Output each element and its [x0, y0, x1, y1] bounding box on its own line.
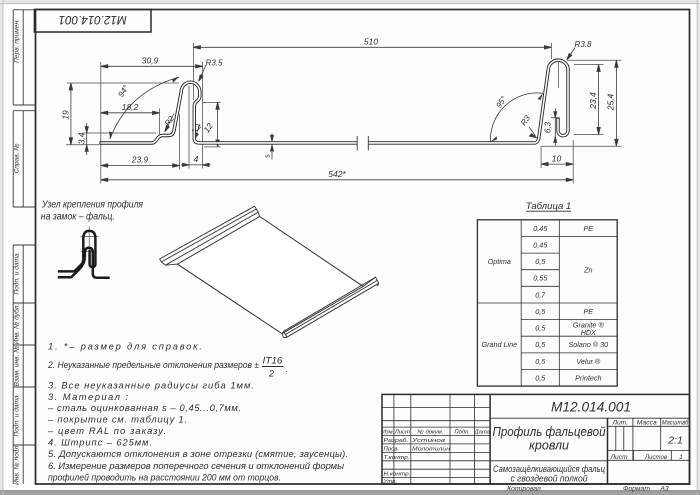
svg-text:19: 19: [61, 110, 71, 120]
svg-text:Grand Line: Grand Line: [482, 340, 518, 349]
svg-text:2:1: 2:1: [667, 435, 683, 447]
svg-text:Т.контр.: Т.контр.: [384, 455, 410, 461]
svg-text:1. *– размер для справок.: 1. *– размер для справок.: [48, 341, 202, 352]
svg-text:30,9: 30,9: [142, 56, 159, 66]
svg-text:Масса: Масса: [637, 420, 657, 427]
svg-text:Velur ®: Velur ®: [576, 357, 601, 366]
svg-text:18,2: 18,2: [122, 102, 139, 112]
svg-text:Дата: Дата: [473, 430, 490, 436]
svg-text:0,45: 0,45: [533, 224, 548, 233]
svg-text:IT16: IT16: [263, 356, 283, 366]
svg-text:0,5: 0,5: [535, 357, 546, 366]
svg-text:Профиль фальцевой: Профиль фальцевой: [493, 425, 606, 439]
svg-text:Масштаб: Масштаб: [662, 419, 689, 427]
svg-text:с гвоздевой полкой: с гвоздевой полкой: [511, 473, 588, 483]
svg-text:542*: 542*: [328, 169, 346, 179]
svg-text:Инв. № подл.: Инв. № подл.: [13, 444, 21, 485]
svg-text:PE: PE: [584, 224, 594, 233]
svg-text:0,5: 0,5: [535, 257, 546, 266]
svg-text:0,55: 0,55: [533, 274, 548, 283]
svg-text:Самозащёлкивающийся фальц: Самозащёлкивающийся фальц: [493, 464, 605, 474]
svg-text:Zn: Zn: [583, 265, 592, 274]
svg-text:Молотилин: Молотилин: [412, 446, 451, 452]
svg-text:25,4: 25,4: [606, 93, 616, 111]
svg-text:Таблица 1: Таблица 1: [526, 201, 571, 212]
svg-text:.: .: [286, 364, 289, 374]
svg-text:Разраб.: Разраб.: [384, 438, 409, 444]
svg-text:Пров.: Пров.: [384, 446, 400, 452]
svg-text:Утв.: Утв.: [383, 479, 397, 485]
svg-text:кровли: кровли: [529, 439, 569, 453]
svg-text:Лит.: Лит.: [611, 420, 628, 427]
svg-text:5. Допускаются отклонения в зо: 5. Допускаются отклонения в зоне отрезки…: [48, 448, 348, 459]
svg-text:Копировал: Копировал: [507, 485, 541, 492]
svg-text:0,5: 0,5: [535, 340, 546, 349]
svg-text:4: 4: [194, 154, 199, 164]
svg-text:Solano ® 30: Solano ® 30: [568, 340, 608, 349]
svg-text:10: 10: [552, 153, 562, 163]
svg-text:0,5: 0,5: [535, 324, 546, 333]
svg-text:Лист: Лист: [610, 454, 628, 461]
svg-text:3,4: 3,4: [77, 132, 87, 144]
svg-text:Инв. № дубл.: Инв. № дубл.: [13, 304, 21, 345]
svg-text:Узел крепления профиля: Узел крепления профиля: [41, 199, 143, 211]
svg-text:0,45: 0,45: [533, 240, 548, 249]
svg-text:Лист: Лист: [394, 430, 410, 436]
svg-text:М12.014.001: М12.014.001: [59, 13, 127, 25]
svg-text:М12.014.001: М12.014.001: [551, 399, 631, 415]
svg-text:2: 2: [268, 369, 274, 379]
svg-text:3. Все неуказанные радиусы гиб: 3. Все неуказанные радиусы гиба 1мм.: [48, 379, 254, 390]
svg-text:6,3: 6,3: [544, 121, 553, 133]
svg-text:R3.5: R3.5: [206, 59, 223, 68]
svg-text:Листов: Листов: [644, 454, 667, 461]
svg-text:0,5: 0,5: [535, 373, 546, 382]
svg-text:Взам. инв. №: Взам. инв. №: [14, 346, 21, 387]
svg-text:510: 510: [364, 37, 378, 47]
svg-text:Формат: Формат: [623, 485, 650, 492]
svg-text:HDX: HDX: [581, 328, 597, 337]
svg-text:А3: А3: [659, 485, 669, 492]
svg-text:6. Измерение размеров поперечн: 6. Измерение размеров поперечного сечени…: [48, 460, 344, 471]
svg-text:0,7: 0,7: [535, 290, 546, 299]
svg-text:23,9: 23,9: [131, 155, 149, 165]
svg-text:профилей проводить на расстоян: профилей проводить на расстоянии 200 мм …: [48, 472, 281, 483]
svg-text:– цвет RAL по заказу.: – цвет RAL по заказу.: [47, 425, 166, 436]
svg-text:Подп. и дата: Подп. и дата: [13, 253, 21, 295]
svg-text:на замок – фальц.: на замок – фальц.: [41, 211, 115, 223]
svg-text:4. Штрипс – 625мм.: 4. Штрипс – 625мм.: [48, 436, 152, 447]
svg-text:s: s: [263, 154, 272, 158]
svg-text:Подп.: Подп.: [454, 430, 470, 436]
svg-text:R3.8: R3.8: [575, 40, 592, 49]
svg-text:1: 1: [679, 454, 683, 461]
svg-text:– покрытие см. таблицу 1.: – покрытие см. таблицу 1.: [47, 414, 187, 425]
svg-text:Справ. №: Справ. №: [14, 144, 21, 174]
svg-text:Printech: Printech: [575, 373, 601, 382]
svg-text:23,4: 23,4: [588, 92, 598, 110]
svg-text:2. Неуказанные предельные откл: 2. Неуказанные предельные отклонения раз…: [47, 359, 259, 370]
svg-text:3. Материал :: 3. Материал :: [48, 391, 128, 402]
svg-text:Optima: Optima: [488, 257, 511, 266]
svg-text:Устинов: Устинов: [411, 438, 445, 444]
svg-text:Перв. примен.: Перв. примен.: [14, 19, 21, 63]
svg-text:0,5: 0,5: [535, 307, 546, 316]
svg-text:Н.контр.: Н.контр.: [384, 472, 411, 478]
svg-text:– сталь оцинкованная s – 0,45.: – сталь оцинкованная s – 0,45...0,7мм.: [47, 402, 241, 413]
svg-text:№ докум.: № докум.: [417, 429, 443, 436]
svg-text:Изм.: Изм.: [382, 430, 395, 436]
svg-text:Подп. и дата: Подп. и дата: [13, 395, 21, 437]
svg-text:PE: PE: [584, 307, 594, 316]
